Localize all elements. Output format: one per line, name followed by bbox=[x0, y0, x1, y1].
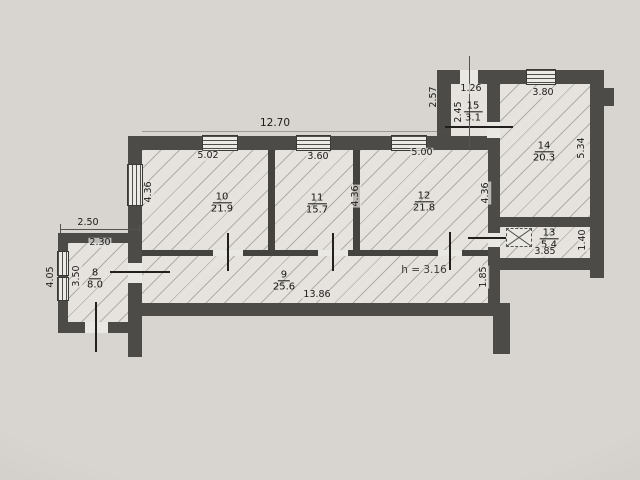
door-mark-room8-bottom-icon bbox=[95, 302, 97, 352]
dim-room14-width: 3.80 bbox=[531, 88, 554, 98]
wall-upper-left bbox=[437, 70, 451, 150]
wall-stub-bottom-right bbox=[493, 316, 510, 354]
door-mark-room11-icon bbox=[332, 233, 334, 271]
wall-room9-top bbox=[142, 250, 488, 256]
window-room14-icon bbox=[527, 70, 555, 84]
room-11-area: 15.7 bbox=[306, 205, 328, 216]
dim-tick-room8-right bbox=[139, 224, 140, 233]
room-10-label: 10 21.9 bbox=[211, 191, 233, 214]
dim-room9-height: 1.85 bbox=[479, 265, 489, 288]
dim-room14-height: 5.34 bbox=[577, 136, 587, 159]
window-room11-icon bbox=[297, 136, 330, 150]
room-15-area: 3.1 bbox=[464, 113, 483, 124]
room-13-number: 13 bbox=[540, 227, 559, 239]
door-mark-room12-icon bbox=[449, 232, 451, 270]
room-11-label: 11 15.7 bbox=[306, 192, 328, 215]
door-gap-room15 bbox=[487, 122, 500, 138]
room-10-number: 10 bbox=[213, 191, 232, 203]
dim-total-top: 12.70 bbox=[259, 118, 291, 130]
door-mark-room10-icon bbox=[227, 233, 229, 271]
room-11-number: 11 bbox=[308, 192, 327, 204]
door-gap-room8-side bbox=[128, 263, 142, 283]
floor-plan-sheet: 8 8.0 9 25.6 10 21.9 11 15.7 12 21.8 13 … bbox=[0, 0, 640, 480]
dim-line-room8-top bbox=[60, 229, 140, 230]
room-12-label: 12 21.8 bbox=[413, 190, 435, 213]
dim-room15-height: 2.45 bbox=[454, 100, 464, 123]
dim-room12-right-height: 4.36 bbox=[481, 181, 491, 204]
dim-room9-width: 13.86 bbox=[302, 290, 331, 300]
window-room8-lower-icon bbox=[58, 278, 68, 300]
room-12-number: 12 bbox=[415, 190, 434, 202]
wall-room12-room14-column bbox=[488, 150, 500, 305]
dim-room8-width-out: 2.50 bbox=[76, 218, 99, 228]
room-10-floor bbox=[142, 150, 268, 250]
door-mark-room8-side-icon bbox=[110, 271, 170, 273]
window-room10-left-icon bbox=[128, 165, 142, 205]
door-mark-room15-icon bbox=[445, 126, 513, 128]
wall-room14-bottom bbox=[500, 217, 590, 227]
dim-room12-width: 5.00 bbox=[410, 148, 433, 158]
wall-main-bottom bbox=[128, 303, 510, 316]
dim-room13-height: 1.40 bbox=[578, 228, 588, 251]
room-8-label: 8 8.0 bbox=[87, 267, 103, 290]
wall-right bbox=[590, 70, 604, 278]
dim-room8-height-out: 4.05 bbox=[46, 265, 56, 288]
dim-room10-height: 4.36 bbox=[144, 180, 154, 203]
dim-room10-width: 5.02 bbox=[196, 151, 219, 161]
wall-room13-bottom bbox=[488, 258, 604, 270]
room-9-number: 9 bbox=[278, 269, 290, 281]
room-12-area: 21.8 bbox=[413, 203, 435, 214]
dim-room13-width: 3.85 bbox=[533, 247, 556, 257]
room-15-number: 15 bbox=[464, 100, 483, 112]
room-10-area: 21.9 bbox=[211, 204, 233, 215]
window-room10-icon bbox=[203, 136, 237, 150]
window-room8-upper-icon bbox=[58, 252, 68, 275]
door-gap-room13 bbox=[488, 233, 500, 247]
shaft-symbol-icon bbox=[506, 228, 532, 247]
dim-room11-room12-height: 4.36 bbox=[351, 184, 361, 207]
dim-tick-room8-left bbox=[60, 224, 61, 233]
room-9-label: 9 25.6 bbox=[273, 269, 295, 292]
dim-room15-left-out: 2.57 bbox=[429, 85, 439, 108]
dim-room11-width: 3.60 bbox=[306, 152, 329, 162]
room-15-label: 15 3.1 bbox=[464, 100, 483, 123]
ceiling-height-note: h = 3.16 bbox=[400, 265, 448, 277]
room-14-label: 14 20.3 bbox=[533, 140, 555, 163]
wall-right-notch bbox=[604, 88, 614, 106]
room-14-number: 14 bbox=[535, 140, 554, 152]
wall-room10-room11 bbox=[268, 150, 275, 250]
room-8-area: 8.0 bbox=[87, 280, 103, 291]
room-8-number: 8 bbox=[89, 267, 101, 279]
dim-line-total-top bbox=[142, 131, 450, 132]
dim-room15-width: 1.26 bbox=[459, 84, 482, 94]
room-9-area: 25.6 bbox=[273, 282, 295, 293]
dim-room8-height-in: 3.50 bbox=[72, 264, 82, 287]
room-14-area: 20.3 bbox=[533, 153, 555, 164]
dim-room8-width-in: 2.30 bbox=[88, 238, 111, 248]
